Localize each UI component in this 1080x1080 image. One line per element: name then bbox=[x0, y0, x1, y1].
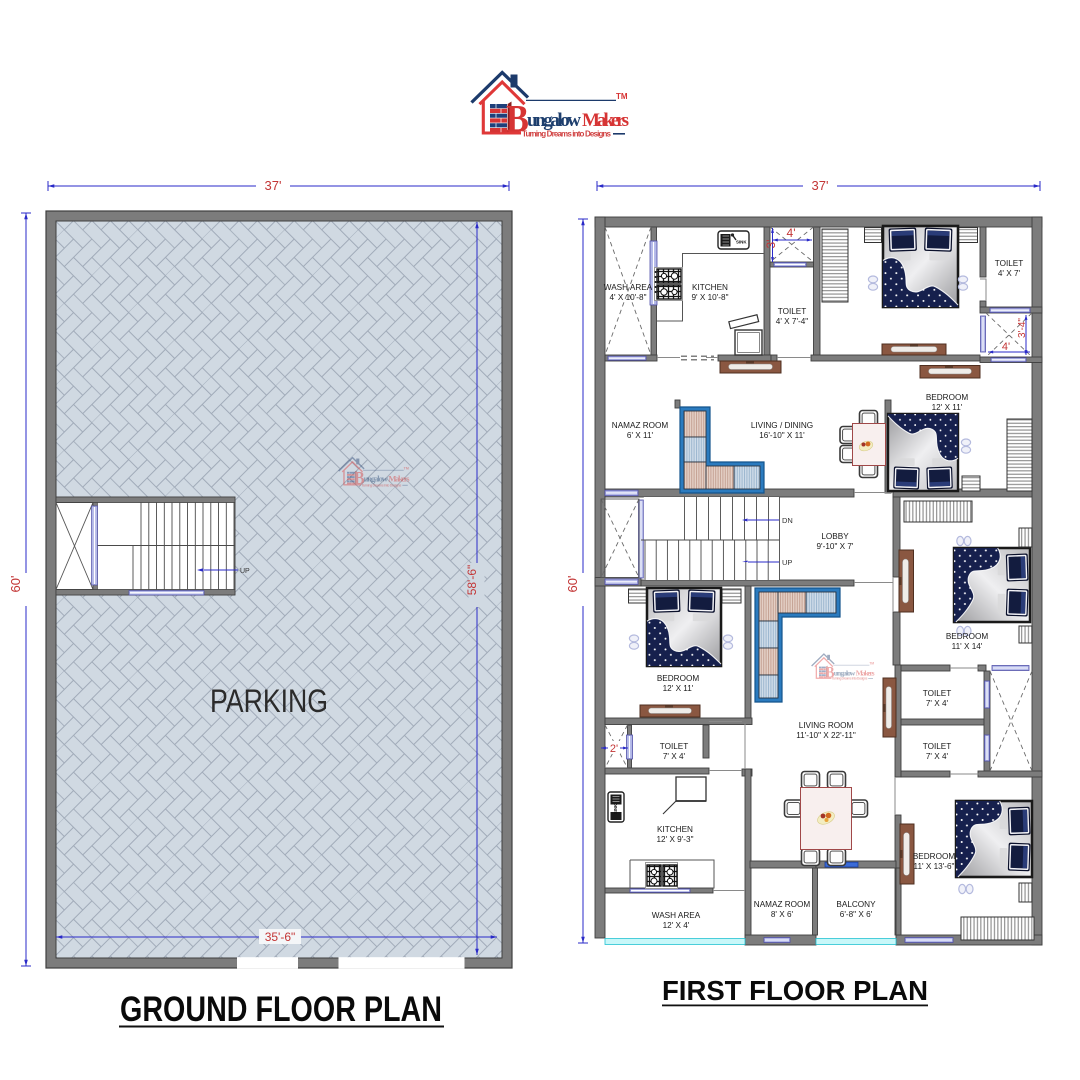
svg-text:12' X 4': 12' X 4' bbox=[663, 921, 690, 930]
svg-text:9' X 10'-8": 9' X 10'-8" bbox=[692, 293, 729, 302]
svg-text:3'-4": 3'-4" bbox=[1017, 318, 1028, 338]
svg-text:58'-6": 58'-6" bbox=[465, 565, 479, 596]
svg-text:6'-8" X 6': 6'-8" X 6' bbox=[840, 910, 873, 919]
svg-text:16'-10" X 11': 16'-10" X 11' bbox=[759, 431, 805, 440]
svg-text:37': 37' bbox=[812, 178, 829, 193]
svg-text:60': 60' bbox=[565, 576, 580, 593]
svg-text:GROUND FLOOR PLAN: GROUND FLOOR PLAN bbox=[120, 990, 442, 1029]
svg-text:60': 60' bbox=[8, 576, 23, 593]
svg-text:UP: UP bbox=[240, 568, 250, 575]
svg-text:37': 37' bbox=[265, 178, 282, 193]
svg-text:4': 4' bbox=[787, 226, 796, 240]
svg-text:TOILET: TOILET bbox=[995, 259, 1024, 268]
svg-text:2': 2' bbox=[610, 743, 618, 755]
svg-text:BEDROOM: BEDROOM bbox=[657, 674, 699, 683]
svg-text:ungalow: ungalow bbox=[527, 110, 581, 131]
svg-text:12' X 9'-3": 12' X 9'-3" bbox=[657, 835, 694, 844]
svg-text:9'-10" X 7': 9'-10" X 7' bbox=[817, 542, 854, 551]
svg-text:KITCHEN: KITCHEN bbox=[657, 825, 693, 834]
svg-text:3': 3' bbox=[764, 240, 778, 249]
svg-text:TM: TM bbox=[616, 92, 628, 101]
svg-text:NAMAZ ROOM: NAMAZ ROOM bbox=[754, 900, 811, 909]
svg-text:12' X 11': 12' X 11' bbox=[932, 403, 963, 412]
svg-text:SINK: SINK bbox=[613, 804, 618, 814]
svg-text:8' X 6': 8' X 6' bbox=[771, 910, 794, 919]
svg-text:35'-6": 35'-6" bbox=[265, 930, 296, 944]
svg-text:TOILET: TOILET bbox=[923, 689, 952, 698]
svg-text:TOILET: TOILET bbox=[660, 742, 689, 751]
svg-text:TOILET: TOILET bbox=[923, 742, 952, 751]
svg-text:7' X 4': 7' X 4' bbox=[926, 752, 949, 761]
svg-text:DN: DN bbox=[782, 516, 793, 525]
svg-text:7' X 4': 7' X 4' bbox=[663, 752, 686, 761]
svg-text:KITCHEN: KITCHEN bbox=[692, 283, 728, 292]
svg-text:SINK: SINK bbox=[736, 240, 747, 245]
svg-text:4' X 7': 4' X 7' bbox=[998, 269, 1021, 278]
svg-text:TOILET: TOILET bbox=[778, 307, 807, 316]
svg-text:WASH AREA: WASH AREA bbox=[604, 283, 653, 292]
svg-text:BEDROOM: BEDROOM bbox=[946, 632, 988, 641]
svg-text:BEDROOM: BEDROOM bbox=[913, 852, 955, 861]
svg-text:FIRST FLOOR PLAN: FIRST FLOOR PLAN bbox=[662, 975, 928, 1006]
svg-text:LOBBY: LOBBY bbox=[821, 532, 849, 541]
svg-text:4' X 10'-8": 4' X 10'-8" bbox=[610, 293, 647, 302]
svg-text:11'-10" X 22'-11": 11'-10" X 22'-11" bbox=[796, 731, 856, 740]
svg-text:BEDROOM: BEDROOM bbox=[926, 393, 968, 402]
svg-text:BALCONY: BALCONY bbox=[836, 900, 876, 909]
svg-text:WASH AREA: WASH AREA bbox=[652, 911, 701, 920]
svg-text:11' X 14': 11' X 14' bbox=[952, 642, 983, 651]
svg-text:12' X 11': 12' X 11' bbox=[663, 684, 694, 693]
svg-text:11' X 13'-6": 11' X 13'-6" bbox=[914, 862, 955, 871]
svg-text:4': 4' bbox=[1002, 341, 1010, 353]
svg-text:Turning Dreams into Designs: Turning Dreams into Designs bbox=[522, 130, 612, 139]
svg-text:Makers: Makers bbox=[582, 110, 629, 131]
svg-text:4' X 7'-4": 4' X 7'-4" bbox=[776, 317, 809, 326]
svg-text:6' X 11': 6' X 11' bbox=[627, 431, 654, 440]
svg-text:LIVING / DINING: LIVING / DINING bbox=[751, 421, 813, 430]
svg-text:7' X 4': 7' X 4' bbox=[926, 699, 949, 708]
svg-text:NAMAZ ROOM: NAMAZ ROOM bbox=[612, 421, 669, 430]
svg-text:PARKING: PARKING bbox=[210, 683, 328, 719]
svg-text:LIVING ROOM: LIVING ROOM bbox=[799, 721, 854, 730]
svg-text:UP: UP bbox=[782, 558, 792, 567]
